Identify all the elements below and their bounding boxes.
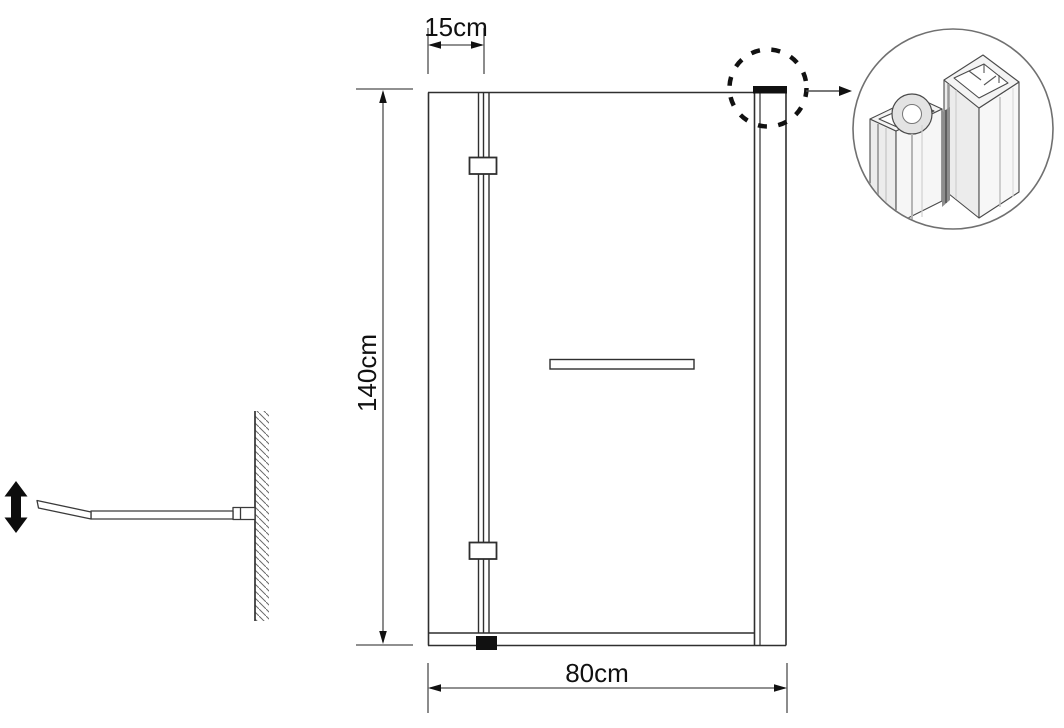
arrowhead — [428, 684, 441, 692]
wall-hatching — [256, 411, 270, 621]
hinge-bottom — [470, 543, 497, 560]
arrowhead — [774, 684, 787, 692]
wall-connector — [233, 508, 255, 520]
arrowhead — [428, 41, 441, 49]
arrowhead — [379, 631, 387, 644]
detail-callout — [730, 50, 853, 127]
arrowhead — [379, 90, 387, 103]
bottom-pivot-block — [476, 636, 497, 650]
door-handle — [550, 360, 694, 370]
arm-bar — [91, 511, 233, 519]
arrowhead — [839, 86, 852, 96]
front-view — [428, 86, 787, 650]
dimension-label-height: 140cm — [353, 328, 381, 418]
dimension-label-top-width: 15cm — [418, 13, 494, 41]
drawing-linework — [0, 0, 1064, 728]
vertical-adjust-arrow-icon — [5, 481, 28, 533]
dimension-label-bottom-width: 80cm — [537, 659, 657, 687]
support-arm — [37, 501, 255, 520]
wall-profile — [753, 86, 787, 646]
side-view — [5, 411, 270, 621]
hinge-top — [470, 158, 497, 175]
arm-tip — [37, 501, 91, 520]
detail-view — [853, 29, 1053, 229]
technical-drawing-canvas: 15cm 140cm 80cm — [0, 0, 1064, 728]
arrowhead — [471, 41, 484, 49]
profile-top-cap — [753, 86, 787, 94]
